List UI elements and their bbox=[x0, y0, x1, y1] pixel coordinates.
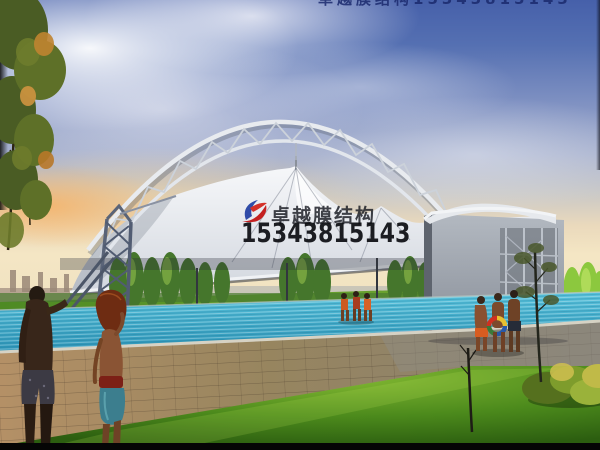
right-edge-shadow bbox=[596, 0, 600, 170]
pool-people-center bbox=[338, 291, 374, 325]
watermark-phone: 15343815143 bbox=[241, 218, 410, 249]
rendering-image: 卓越膜结构15343815143 卓越膜结构 15343815143 bbox=[0, 0, 600, 450]
bottom-border bbox=[0, 443, 600, 450]
foreground-tree bbox=[0, 0, 66, 250]
